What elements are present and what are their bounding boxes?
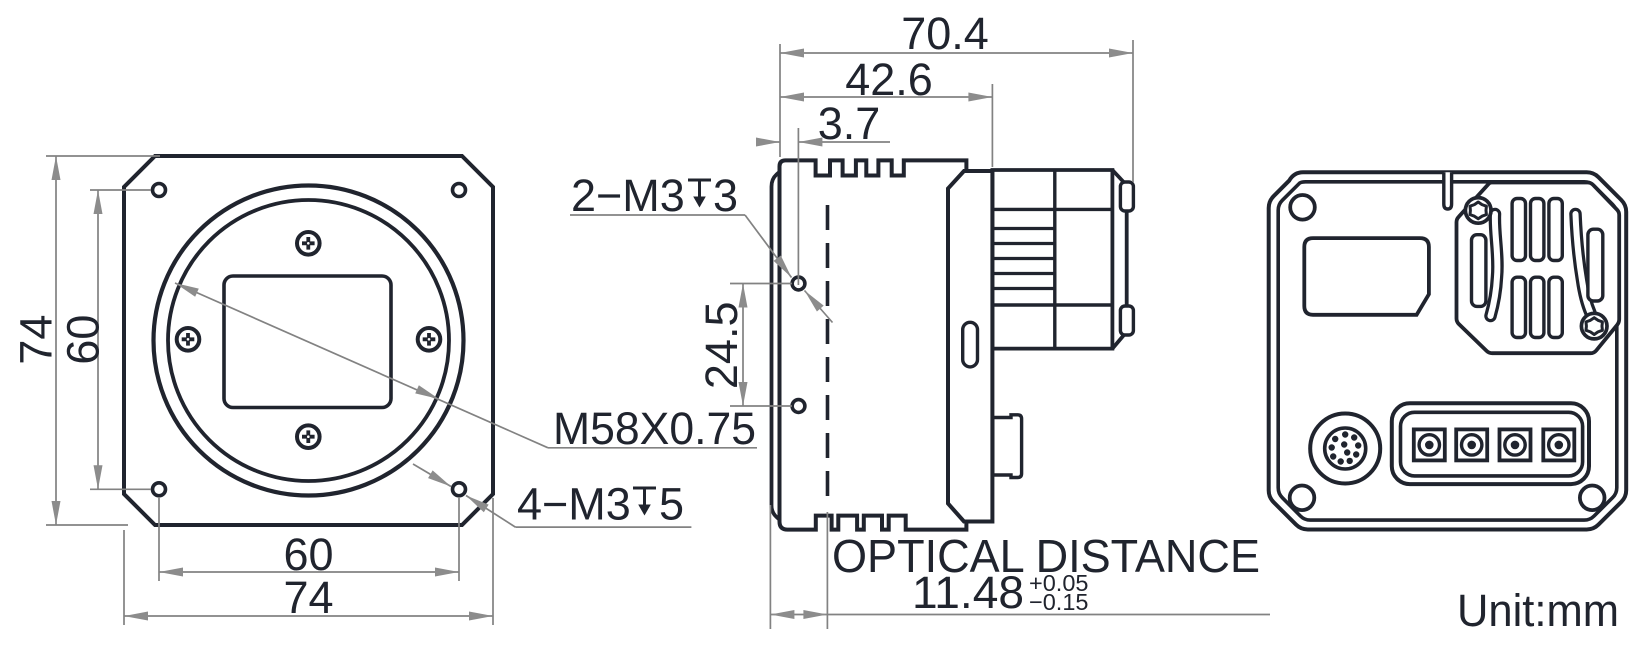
svg-text:M58X0.75: M58X0.75 — [553, 403, 756, 454]
svg-text:3.7: 3.7 — [818, 98, 881, 149]
svg-text:−0.15: −0.15 — [1029, 589, 1088, 615]
svg-text:74: 74 — [283, 572, 333, 623]
svg-text:2−M3: 2−M3 — [571, 170, 685, 221]
svg-text:4−M3: 4−M3 — [517, 479, 631, 530]
svg-text:24.5: 24.5 — [696, 302, 747, 390]
svg-text:Unit:mm: Unit:mm — [1457, 585, 1619, 636]
svg-text:5: 5 — [659, 479, 684, 530]
svg-text:3: 3 — [713, 170, 738, 221]
svg-text:74: 74 — [11, 315, 62, 365]
svg-text:60: 60 — [58, 315, 109, 365]
svg-text:11.48: 11.48 — [912, 567, 1024, 618]
svg-text:70.4: 70.4 — [901, 8, 989, 59]
